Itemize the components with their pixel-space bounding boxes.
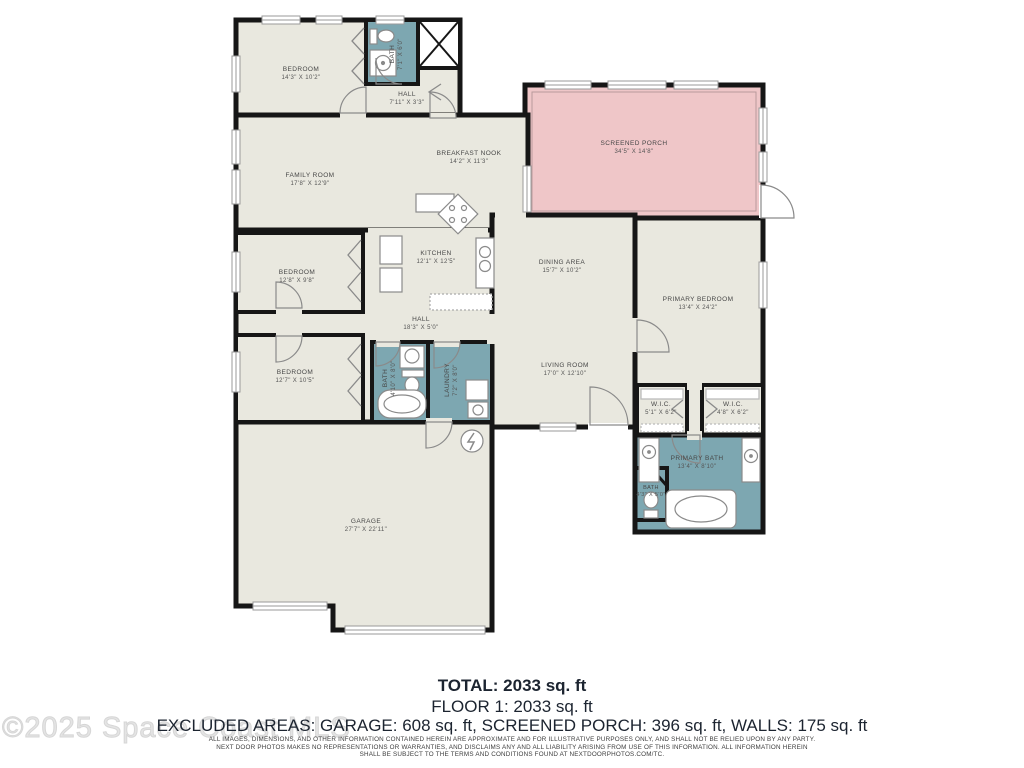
total-sqft-text: TOTAL: 2033 sq. ft	[0, 676, 1024, 696]
disclaimer-line-1: ALL IMAGES, DIMENSIONS, AND OTHER INFORM…	[0, 736, 1024, 744]
room-dims: 4'3" X 5'0"	[636, 492, 665, 499]
room-name: HALL	[403, 315, 438, 324]
room-dims: 4'10" X 8'0"	[390, 360, 399, 395]
room-dims: 12'8" X 9'8"	[279, 277, 315, 286]
floor1-sqft-text: FLOOR 1: 2033 sq. ft	[0, 697, 1024, 717]
room-dims: 7'1" X 6'0"	[397, 38, 406, 70]
room-dims: 34'5" X 14'8"	[601, 148, 668, 157]
room-dims: 7'11" X 3'3"	[390, 99, 425, 108]
disclaimer-line-2: NEXT DOOR PHOTOS MAKES NO REPRESENTATION…	[0, 744, 1024, 752]
room-dims: 5'1" X 6'2"	[645, 409, 677, 418]
room-name: FAMILY ROOM	[286, 171, 335, 180]
disclaimer-line-3: SHALL BE SUBJECT TO THE TERMS AND CONDIT…	[0, 751, 1024, 759]
room-name: KITCHEN	[416, 249, 455, 258]
room-name: PRIMARY BEDROOM	[663, 295, 734, 304]
room-dims: 12'7" X 10'5"	[275, 377, 314, 386]
room-name: GARAGE	[345, 517, 387, 526]
room-label-primary-bath: PRIMARY BATH13'4" X 8'10"	[671, 454, 724, 472]
room-label-hall-1: HALL7'11" X 3'3"	[390, 90, 425, 108]
room-name: BATH	[381, 360, 390, 395]
room-label-wic-1: W.I.C.5'1" X 6'2"	[645, 400, 677, 418]
room-name: BEDROOM	[275, 368, 314, 377]
room-label-breakfast-nook: BREAKFAST NOOK14'2" X 11'3"	[437, 149, 502, 167]
room-label-garage: GARAGE27'7" X 22'11"	[345, 517, 387, 535]
room-dims: 14'3" X 10'2"	[281, 74, 320, 83]
room-label-kitchen: KITCHEN12'1" X 12'5"	[416, 249, 455, 267]
room-dims: 13'4" X 8'10"	[671, 463, 724, 472]
room-name: BATH	[636, 485, 665, 492]
room-dims: 27'7" X 22'11"	[345, 526, 387, 535]
room-name: LIVING ROOM	[541, 361, 589, 370]
room-label-bedroom-1: BEDROOM14'3" X 10'2"	[281, 65, 320, 83]
room-name: SCREENED PORCH	[601, 139, 668, 148]
room-dims: 4'8" X 6'2"	[717, 409, 749, 418]
room-dims: 17'8" X 12'9"	[286, 180, 335, 189]
room-name: BREAKFAST NOOK	[437, 149, 502, 158]
excluded-areas-text: EXCLUDED AREAS: GARAGE: 608 sq. ft, SCRE…	[0, 716, 1024, 736]
room-label-primary-bedroom: PRIMARY BEDROOM13'4" X 24'2"	[663, 295, 734, 313]
room-label-hall-2: HALL18'3" X 5'0"	[403, 315, 438, 333]
room-name: LAUNDRY	[443, 363, 452, 397]
room-label-bedroom-3: BEDROOM12'7" X 10'5"	[275, 368, 314, 386]
room-dims: 13'4" X 24'2"	[663, 304, 734, 313]
room-label-living-room: LIVING ROOM17'0" X 12'10"	[541, 361, 589, 379]
room-name: W.I.C.	[717, 400, 749, 409]
room-dims: 17'0" X 12'10"	[541, 370, 589, 379]
room-label-bedroom-2: BEDROOM12'8" X 9'8"	[279, 268, 315, 286]
room-dims: 18'3" X 5'0"	[403, 324, 438, 333]
room-name: DINING AREA	[539, 258, 585, 267]
room-name: BATH	[388, 38, 397, 70]
room-label-dining-area: DINING AREA15'7" X 10'2"	[539, 258, 585, 276]
room-name: W.I.C.	[645, 400, 677, 409]
room-label-laundry: LAUNDRY7'2" X 8'0"	[443, 363, 461, 397]
room-label-screened-porch: SCREENED PORCH34'5" X 14'8"	[601, 139, 668, 157]
room-label-wic-2: W.I.C.4'8" X 6'2"	[717, 400, 749, 418]
room-name: PRIMARY BATH	[671, 454, 724, 463]
floor-plan-page: ©2025 Space Coast MLS	[0, 0, 1024, 768]
disclaimer-text: ALL IMAGES, DIMENSIONS, AND OTHER INFORM…	[0, 736, 1024, 759]
room-name: BEDROOM	[279, 268, 315, 277]
room-label-bath-1: BATH7'1" X 6'0"	[388, 38, 406, 70]
room-label-bath-3: BATH4'3" X 5'0"	[636, 485, 665, 499]
room-dims: 7'2" X 8'0"	[452, 363, 461, 397]
room-label-bath-2: BATH4'10" X 8'0"	[381, 360, 399, 395]
room-label-family-room: FAMILY ROOM17'8" X 12'9"	[286, 171, 335, 189]
room-name: HALL	[390, 90, 425, 99]
room-dims: 14'2" X 11'3"	[437, 158, 502, 167]
room-dims: 15'7" X 10'2"	[539, 267, 585, 276]
room-dims: 12'1" X 12'5"	[416, 258, 455, 267]
floor-plan-drawing	[0, 0, 1024, 768]
water-heater-icon	[461, 430, 483, 452]
room-name: BEDROOM	[281, 65, 320, 74]
